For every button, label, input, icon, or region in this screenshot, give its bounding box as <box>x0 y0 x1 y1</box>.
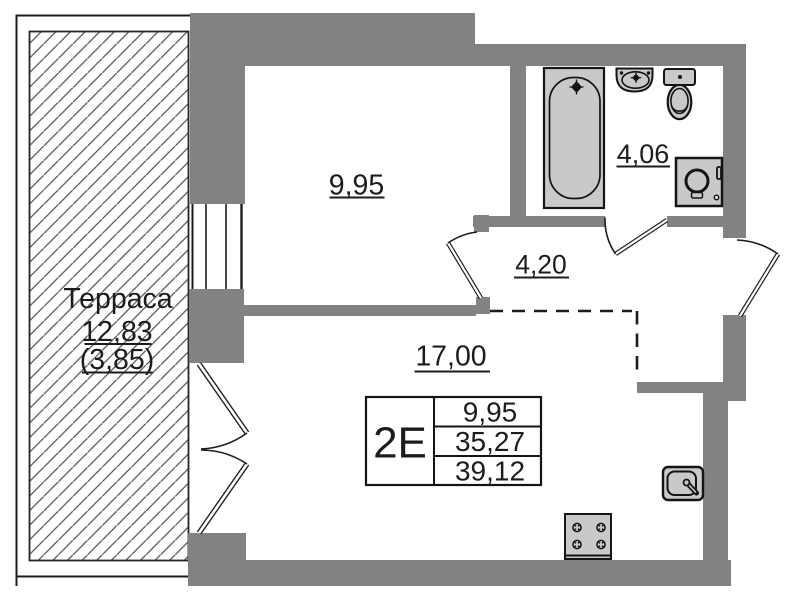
svg-text:4,20: 4,20 <box>515 250 567 280</box>
svg-text:35,27: 35,27 <box>455 426 525 457</box>
svg-text:39,12: 39,12 <box>455 456 525 487</box>
svg-text:9,95: 9,95 <box>463 397 518 428</box>
svg-text:Терраса: Терраса <box>63 283 172 315</box>
svg-text:2Е: 2Е <box>373 419 427 468</box>
svg-text:(3,85): (3,85) <box>80 344 154 376</box>
svg-text:4,06: 4,06 <box>617 139 670 169</box>
svg-text:17,00: 17,00 <box>415 341 486 373</box>
